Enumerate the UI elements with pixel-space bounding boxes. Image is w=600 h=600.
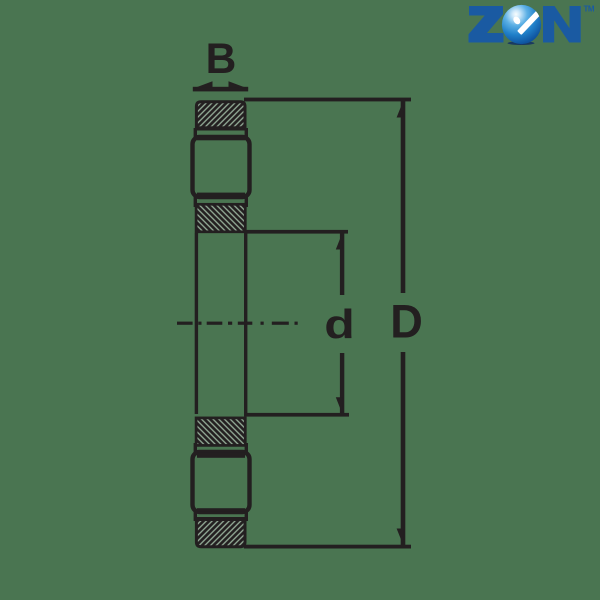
svg-text:d: d [324,301,355,347]
svg-text:B: B [206,36,237,83]
svg-text:TM: TM [584,4,595,13]
svg-text:D: D [390,294,423,347]
